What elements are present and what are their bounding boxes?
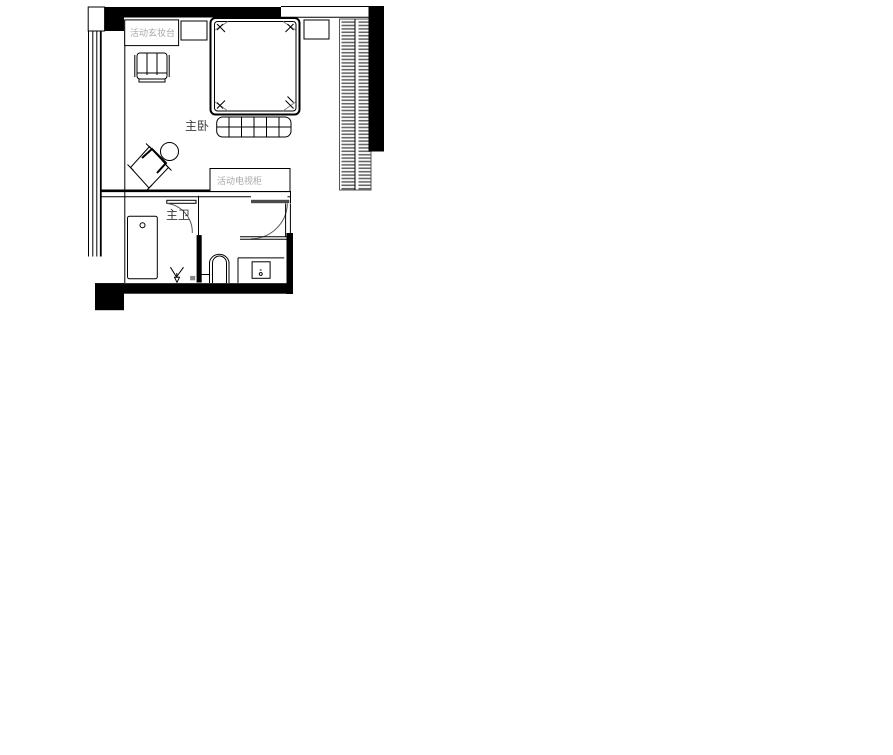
svg-text:主卫: 主卫 xyxy=(166,208,190,222)
svg-text:活动玄妆台: 活动玄妆台 xyxy=(130,27,175,38)
svg-text:主卧: 主卧 xyxy=(185,119,209,133)
svg-text:活动电视柜: 活动电视柜 xyxy=(217,175,262,186)
